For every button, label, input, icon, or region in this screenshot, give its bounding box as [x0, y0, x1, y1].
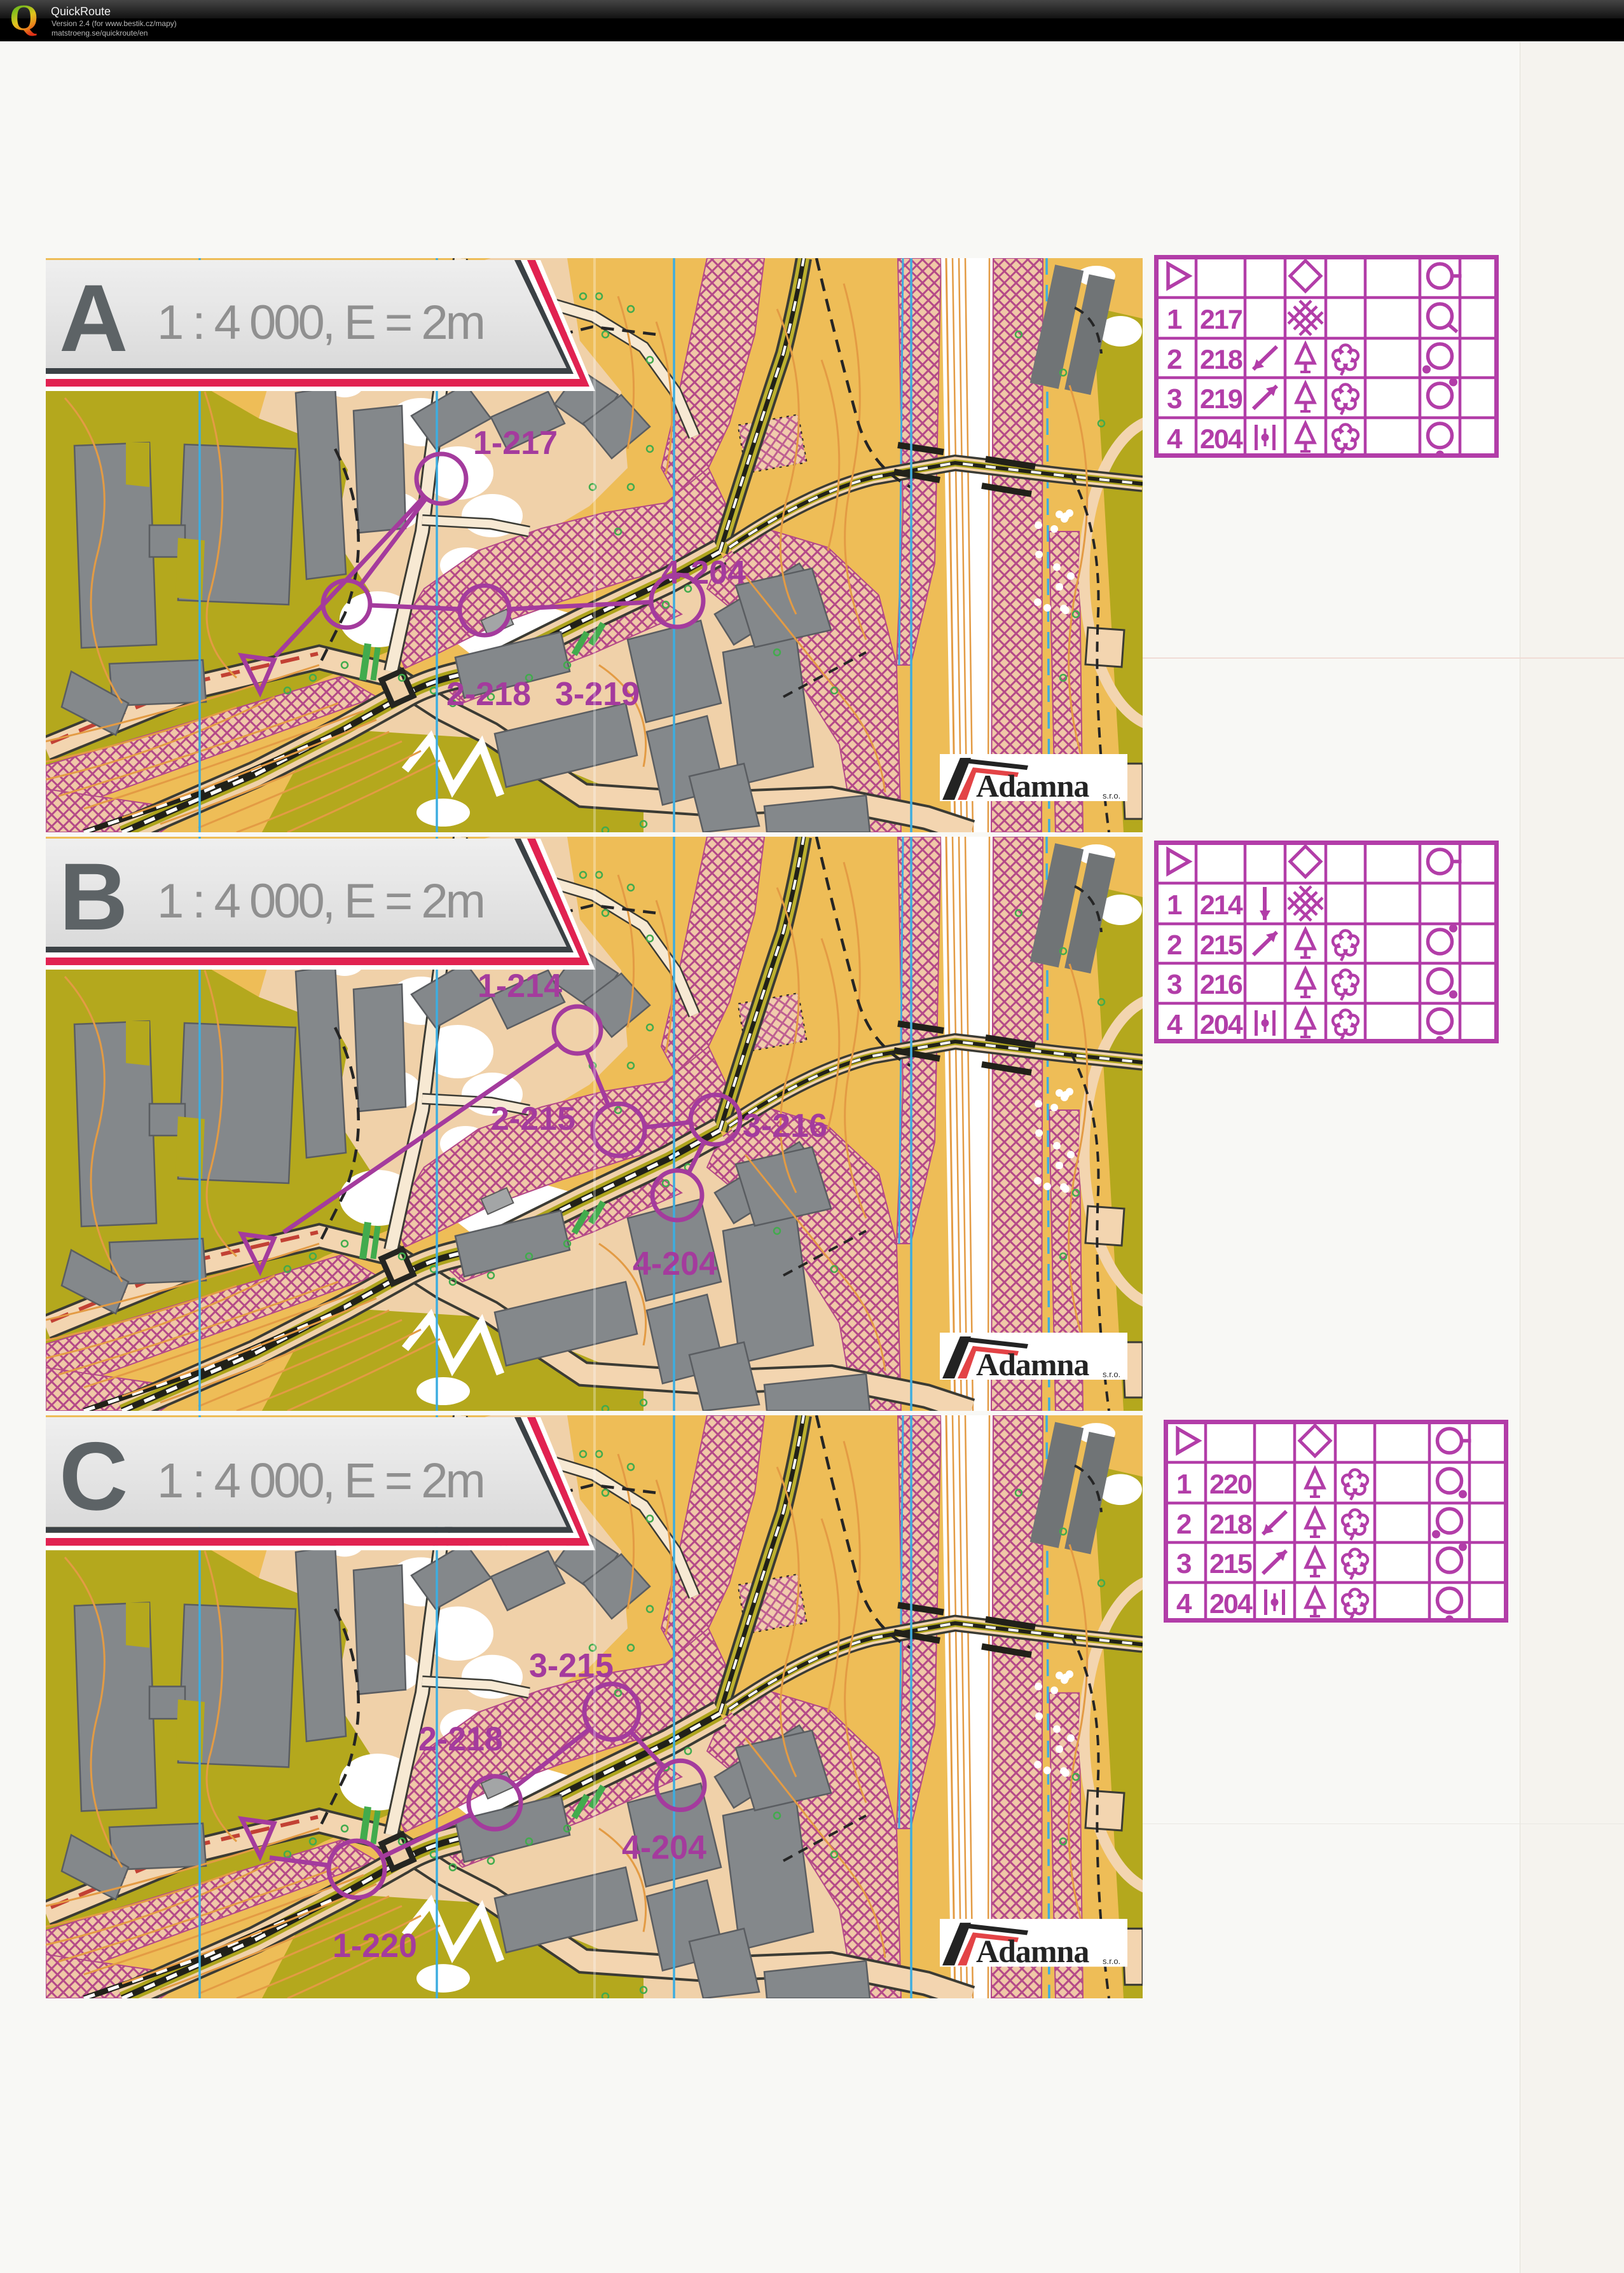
svg-text:Q: Q — [10, 0, 38, 38]
svg-text:204: 204 — [1200, 424, 1243, 455]
svg-text:4: 4 — [1167, 423, 1183, 455]
svg-text:204: 204 — [1200, 1010, 1243, 1040]
svg-text:204: 204 — [1209, 1589, 1253, 1619]
svg-text:218: 218 — [1200, 345, 1242, 375]
svg-text:4: 4 — [1176, 1588, 1192, 1619]
svg-text:1: 1 — [1167, 889, 1182, 921]
svg-text:3: 3 — [1167, 969, 1182, 1000]
svg-text:3: 3 — [1176, 1548, 1192, 1579]
svg-text:219: 219 — [1200, 384, 1242, 415]
svg-text:218: 218 — [1209, 1509, 1252, 1540]
svg-text:2: 2 — [1167, 344, 1182, 375]
svg-text:216: 216 — [1200, 970, 1242, 1000]
svg-text:220: 220 — [1209, 1469, 1252, 1500]
svg-text:1: 1 — [1176, 1469, 1192, 1500]
svg-text:Version 2.4 (for www.bestik.c: Version 2.4 (for www.bestik.cz/mapy) — [52, 19, 177, 28]
svg-text:214: 214 — [1200, 890, 1243, 921]
svg-text:3: 3 — [1167, 383, 1182, 415]
svg-text:2: 2 — [1176, 1509, 1192, 1540]
svg-text:1: 1 — [1167, 304, 1182, 335]
svg-text:217: 217 — [1200, 305, 1242, 335]
svg-text:215: 215 — [1200, 930, 1242, 961]
svg-text:2: 2 — [1167, 930, 1182, 961]
svg-text:matstroeng.se/quickroute/en: matstroeng.se/quickroute/en — [52, 29, 148, 38]
svg-text:215: 215 — [1209, 1549, 1252, 1579]
svg-text:4: 4 — [1167, 1009, 1183, 1040]
svg-text:QuickRoute: QuickRoute — [51, 5, 111, 18]
